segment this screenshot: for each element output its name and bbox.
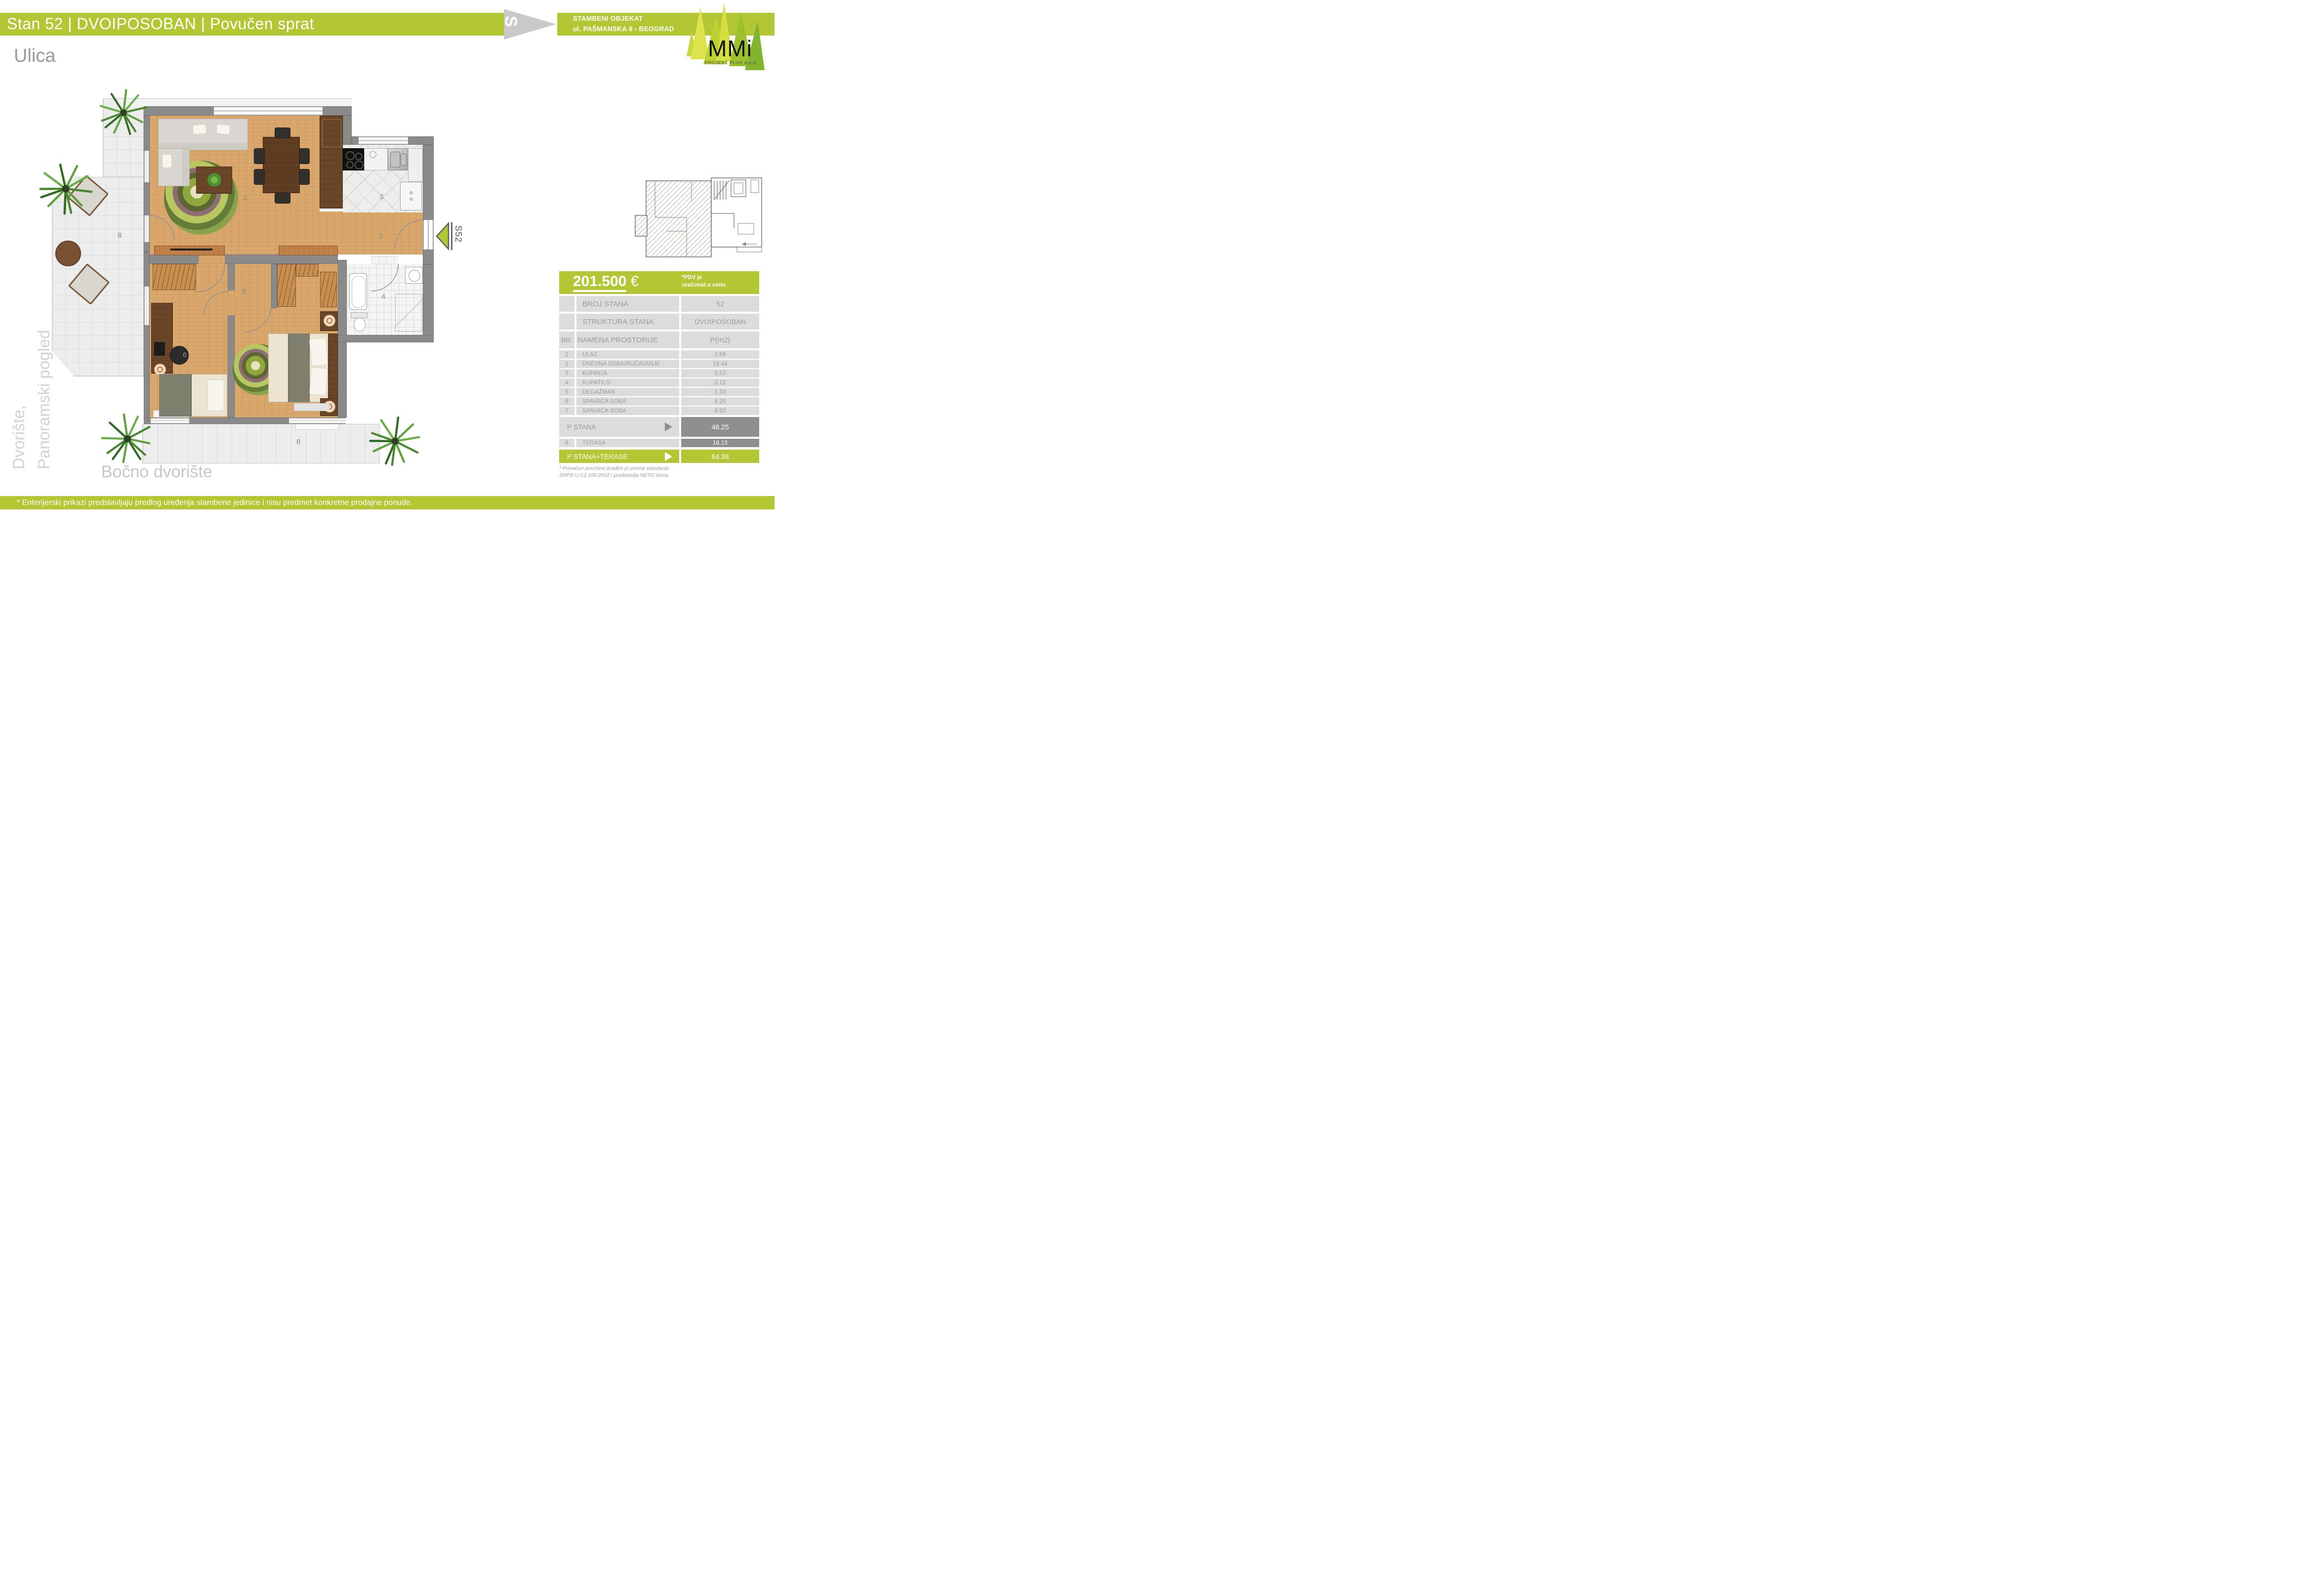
row-nr: 2 (559, 360, 574, 368)
row-nr: 6 (559, 397, 574, 406)
row-area: 3.12 (681, 378, 759, 387)
row-nr: 7 (559, 407, 574, 415)
p-stana-cell: P STANA (559, 417, 679, 437)
table-row: 6 SPAVAĆA SOBA 8.25 (559, 397, 759, 406)
table-row: 2 DNEVNA SOBA/RUČAVANJE 19.44 (559, 360, 759, 368)
table-row: 4 KUPATILO 3.12 (559, 378, 759, 387)
arrow-icon (665, 452, 672, 461)
vat-line1: *PDV je (682, 274, 726, 282)
row-area: 19.44 (681, 360, 759, 368)
unit-marker-label: S52 (453, 225, 463, 243)
broj-stana-label: BROJ STANA (576, 296, 679, 312)
row-name: SPAVAĆA SOBA (576, 397, 679, 406)
price-currency: € (631, 273, 639, 290)
row-name: DNEVNA SOBA/RUČAVANJE (576, 360, 679, 368)
palm-plant-left (34, 157, 98, 220)
price-amount: 201.500 (573, 273, 626, 292)
disclaimer-text: * Enterijerski prikazi predstavljaju pre… (0, 499, 412, 507)
palm-plant-topleft (101, 90, 146, 134)
total-label: P STANA+TERASE (567, 453, 628, 460)
terasa-row: 8 TERASA 16.13 (559, 439, 759, 447)
vat-line2: uračunat u cenu (682, 282, 726, 289)
info-row-broj: BROJ STANA 52 (559, 296, 759, 312)
info-cell-empty (559, 296, 574, 312)
total-value: 64.38 (681, 450, 759, 463)
door-arcs (150, 215, 424, 332)
row-area: 9.92 (681, 407, 759, 415)
col-header-area: P(m2) (681, 332, 759, 348)
unit-marker: S52 (437, 222, 463, 250)
footnote-line2: SRPS U.C2.100:2002 i predstavlja NETO iz… (559, 472, 669, 479)
struktura-label: STRUKTURA STANA (576, 314, 679, 330)
footnote: * Proračun površina izrađen je prema sta… (559, 465, 669, 479)
row-name: DEGAŽMAN (576, 388, 679, 396)
palm-plant-bottomright (362, 407, 429, 475)
disclaimer-bar: * Enterijerski prikazi predstavljaju pre… (0, 496, 775, 509)
info-row-struktura: STRUKTURA STANA DVOIPOSOBAN (559, 314, 759, 330)
table-row: 7 SPAVAĆA SOBA 9.92 (559, 407, 759, 415)
row-nr: 4 (559, 378, 574, 387)
vat-note: *PDV je uračunat u cenu (682, 274, 726, 289)
row-name: SPAVAĆA SOBA (576, 407, 679, 415)
row-nr: 1 (559, 350, 574, 359)
palm-plant-bottomleft (98, 409, 157, 467)
flyer-page: Stan 52 | DVOIPOSOBAN | Povučen sprat S … (0, 0, 775, 529)
table-row: 1 ULAZ 2.66 (559, 350, 759, 359)
struktura-value: DVOIPOSOBAN (681, 314, 759, 330)
broj-stana-value: 52 (681, 296, 759, 312)
row-area: 3.53 (681, 369, 759, 377)
table-row: 5 DEGAŽMAN 1.33 (559, 388, 759, 396)
price-box: 201.500 € *PDV je uračunat u cenu (559, 271, 759, 294)
table-header-row: BR. NAMENA PROSTORIJE P(m2) (559, 332, 759, 348)
row-nr: 3 (559, 369, 574, 377)
terasa-label: TERASA (576, 439, 679, 447)
terasa-value: 16.13 (681, 439, 759, 447)
info-cell-empty (559, 314, 574, 330)
row-area: 8.25 (681, 397, 759, 406)
col-header-nr: BR. (559, 332, 574, 348)
table-row: 3 KUHINJA 3.53 (559, 369, 759, 377)
col-header-name: NAMENA PROSTORIJE (576, 332, 679, 348)
row-name: KUPATILO (576, 378, 679, 387)
arrow-icon (665, 422, 672, 431)
site-plan-thumbnail (635, 178, 762, 257)
terasa-nr: 8 (559, 439, 574, 447)
row-nr: 5 (559, 388, 574, 396)
row-area: 2.66 (681, 350, 759, 359)
total-row: P STANA+TERASE 64.38 (559, 450, 759, 463)
row-name: ULAZ (576, 350, 679, 359)
p-stana-row: P STANA 48.25 (559, 417, 759, 437)
price: 201.500 € (573, 273, 639, 290)
footnote-line1: * Proračun površina izrađen je prema sta… (559, 465, 669, 472)
row-area: 1.33 (681, 388, 759, 396)
p-stana-value: 48.25 (681, 417, 759, 437)
row-name: KUHINJA (576, 369, 679, 377)
p-stana-label: P STANA (567, 423, 596, 431)
total-cell: P STANA+TERASE (559, 450, 679, 463)
